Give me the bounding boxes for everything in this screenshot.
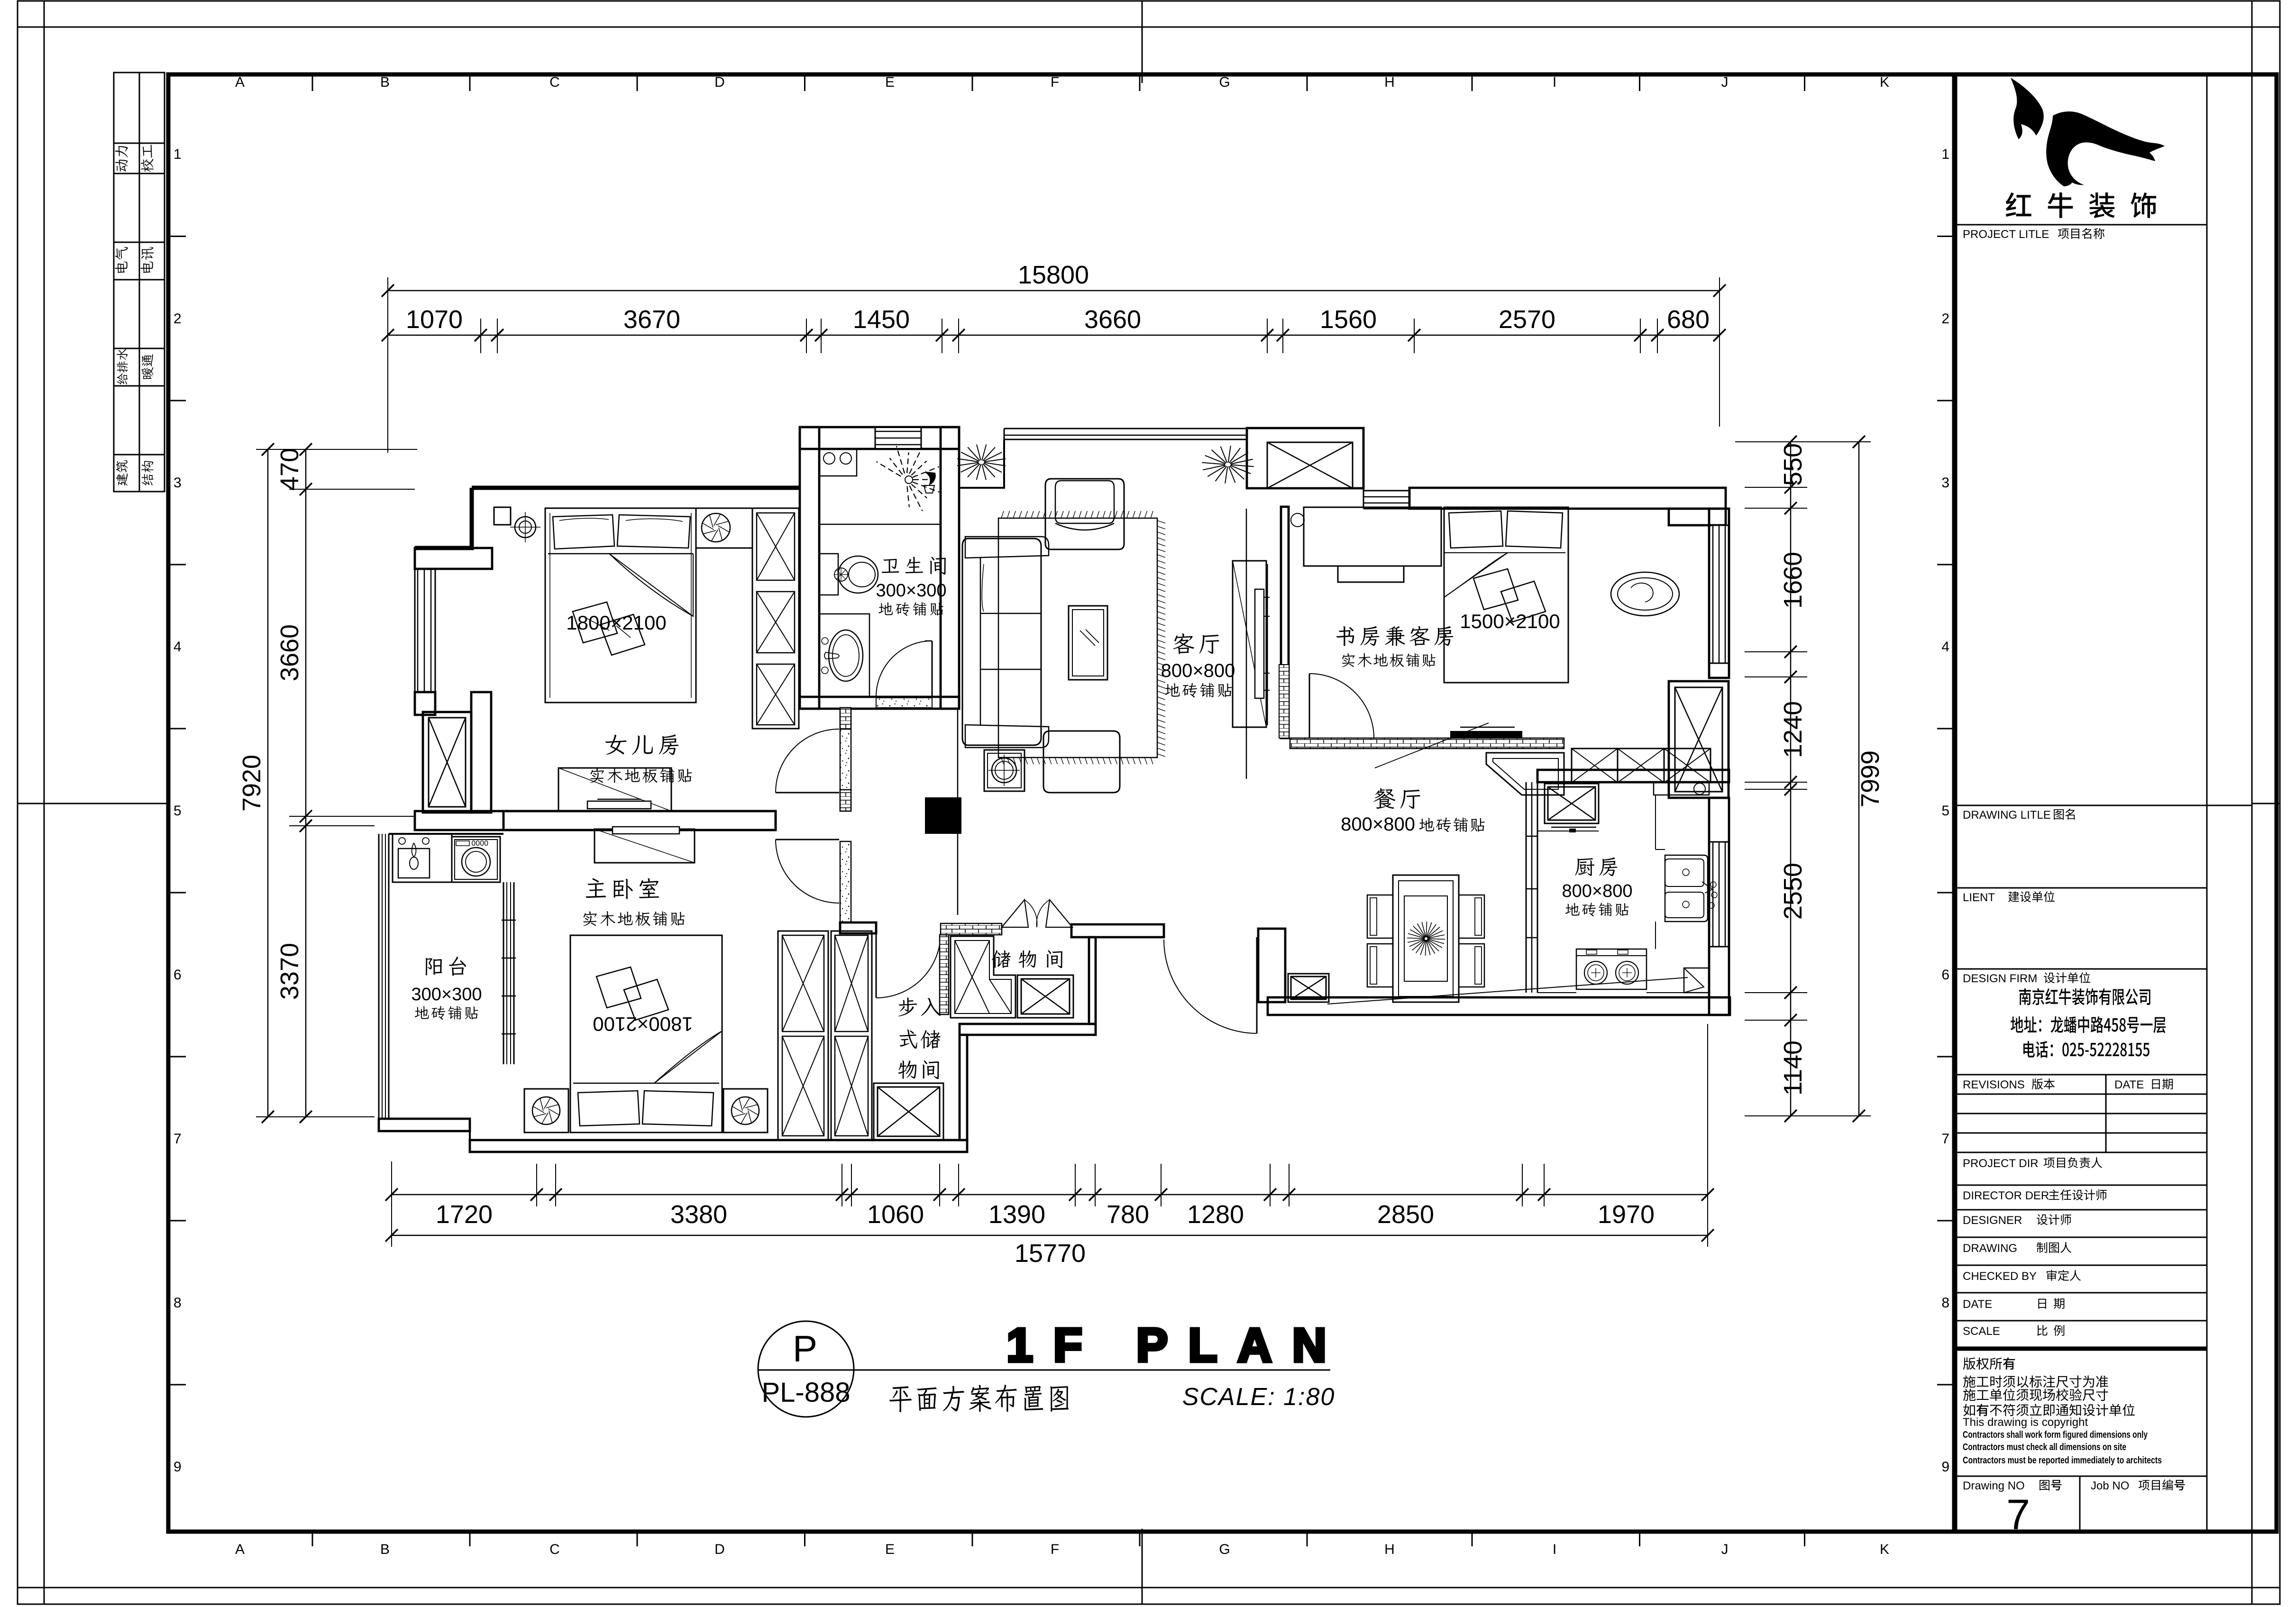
svg-text:800×800: 800×800 [1341, 814, 1415, 835]
svg-text:Contractors must check all dim: Contractors must check all dimensions on… [1963, 1442, 2126, 1452]
svg-text:300×300: 300×300 [412, 985, 482, 1004]
svg-text:DESIGNER: DESIGNER [1963, 1214, 2022, 1227]
svg-text:SCALE: 1:80: SCALE: 1:80 [1182, 1383, 1336, 1411]
svg-text:3670: 3670 [623, 305, 680, 334]
svg-text:DRAWING: DRAWING [1963, 1242, 2017, 1255]
svg-text:800×800: 800×800 [1562, 881, 1633, 901]
svg-text:DATE: DATE [1963, 1298, 1992, 1311]
svg-text:2570: 2570 [1499, 305, 1555, 334]
svg-text:P: P [793, 1328, 817, 1370]
svg-text:C: C [549, 1542, 560, 1557]
svg-text:3370: 3370 [275, 943, 304, 1000]
svg-text:8: 8 [1941, 1295, 1949, 1311]
svg-text:4: 4 [174, 639, 182, 655]
svg-text:G: G [1219, 1542, 1230, 1557]
svg-text:Contractors must be reported i: Contractors must be reported immediately… [1963, 1455, 2162, 1466]
svg-text:3380: 3380 [670, 1200, 727, 1229]
svg-text:8: 8 [174, 1295, 182, 1311]
svg-text:1390: 1390 [988, 1200, 1045, 1229]
svg-text:1: 1 [174, 146, 182, 162]
svg-text:3: 3 [174, 475, 182, 491]
svg-text:1280: 1280 [1187, 1200, 1244, 1229]
svg-text:9: 9 [1941, 1459, 1949, 1475]
svg-text:H: H [1384, 74, 1395, 90]
svg-text:PROJECT DIR: PROJECT DIR [1963, 1157, 2039, 1170]
svg-text:DRAWING LITLE: DRAWING LITLE [1963, 809, 2051, 822]
svg-text:PROJECT LITLE: PROJECT LITLE [1963, 228, 2049, 241]
svg-text:3: 3 [1941, 475, 1949, 491]
svg-text:Drawing NO: Drawing NO [1963, 1479, 2025, 1492]
svg-text:F: F [1051, 74, 1059, 90]
svg-text:B: B [380, 74, 390, 90]
svg-text:2550: 2550 [1779, 863, 1807, 920]
svg-text:DATE: DATE [2114, 1078, 2144, 1091]
svg-text:D: D [714, 74, 725, 90]
svg-text:DESIGN FIRM: DESIGN FIRM [1963, 972, 2037, 985]
svg-text:1F PLAN: 1F PLAN [1006, 1319, 1347, 1372]
svg-text:7: 7 [1941, 1131, 1949, 1147]
svg-text:4: 4 [1941, 639, 1949, 655]
svg-text:F: F [1051, 1542, 1059, 1557]
svg-text:7920: 7920 [238, 755, 266, 812]
svg-text:1070: 1070 [406, 305, 463, 334]
svg-text:1800×2100: 1800×2100 [566, 612, 666, 634]
svg-text:H: H [1384, 1542, 1395, 1557]
svg-text:1560: 1560 [1320, 305, 1377, 334]
svg-text:550: 550 [1779, 443, 1807, 486]
svg-text:1: 1 [1941, 146, 1949, 162]
svg-text:1720: 1720 [436, 1200, 493, 1229]
svg-text:J: J [1721, 74, 1729, 90]
svg-text:CHECKED BY: CHECKED BY [1963, 1270, 2037, 1283]
svg-text:780: 780 [1107, 1200, 1149, 1229]
svg-text:1500×2100: 1500×2100 [1460, 610, 1560, 632]
svg-text:300×300: 300×300 [876, 581, 947, 601]
svg-text:15800: 15800 [1018, 261, 1089, 289]
svg-text:5: 5 [174, 803, 182, 819]
svg-text:7: 7 [2006, 1491, 2030, 1539]
svg-text:A: A [235, 74, 245, 90]
svg-text:Job NO: Job NO [2091, 1479, 2129, 1492]
svg-text:LIENT: LIENT [1963, 891, 1995, 904]
svg-text:SCALE: SCALE [1963, 1325, 2000, 1338]
svg-text:1140: 1140 [1779, 1041, 1807, 1096]
svg-text:PL-888: PL-888 [761, 1377, 850, 1408]
svg-text:I: I [1553, 74, 1556, 90]
svg-text:This drawing is copyright: This drawing is copyright [1963, 1416, 2088, 1429]
svg-text:680: 680 [1667, 305, 1710, 334]
svg-text:DIRECTOR DER: DIRECTOR DER [1963, 1189, 2049, 1202]
svg-text:7: 7 [174, 1131, 182, 1147]
svg-text:Contractors shall work form fi: Contractors shall work form figured dime… [1963, 1430, 2148, 1440]
svg-text:3660: 3660 [1084, 305, 1141, 334]
svg-text:0000: 0000 [471, 840, 488, 848]
svg-text:5: 5 [1941, 803, 1949, 819]
svg-text:A: A [235, 1542, 245, 1557]
svg-text:1240: 1240 [1779, 701, 1807, 758]
svg-text:C: C [549, 74, 560, 90]
svg-text:J: J [1721, 1542, 1729, 1557]
svg-text:800×800: 800×800 [1161, 660, 1235, 681]
svg-text:470: 470 [275, 448, 304, 491]
svg-text:3660: 3660 [275, 624, 304, 681]
svg-text:7999: 7999 [1856, 750, 1884, 807]
svg-text:G: G [1219, 74, 1230, 90]
svg-text:6: 6 [174, 967, 182, 983]
svg-text:2: 2 [1941, 311, 1949, 327]
svg-text:1800×2100: 1800×2100 [593, 1013, 693, 1035]
svg-text:D: D [714, 1542, 725, 1557]
svg-text:1060: 1060 [867, 1200, 924, 1229]
svg-text:15770: 15770 [1015, 1239, 1086, 1268]
svg-text:1450: 1450 [853, 305, 910, 334]
svg-text:2: 2 [174, 311, 182, 327]
svg-text:REVISIONS: REVISIONS [1963, 1078, 2025, 1091]
svg-text:1660: 1660 [1779, 552, 1807, 609]
svg-text:1970: 1970 [1598, 1200, 1655, 1229]
svg-text:K: K [1880, 1542, 1889, 1557]
svg-text:I: I [1553, 1542, 1556, 1557]
svg-text:6: 6 [1941, 967, 1949, 983]
svg-text:K: K [1880, 74, 1889, 90]
svg-text:E: E [885, 1542, 895, 1557]
svg-text:2850: 2850 [1377, 1200, 1434, 1229]
svg-text:9: 9 [174, 1459, 182, 1475]
svg-text:B: B [380, 1542, 390, 1557]
svg-text:E: E [885, 74, 895, 90]
